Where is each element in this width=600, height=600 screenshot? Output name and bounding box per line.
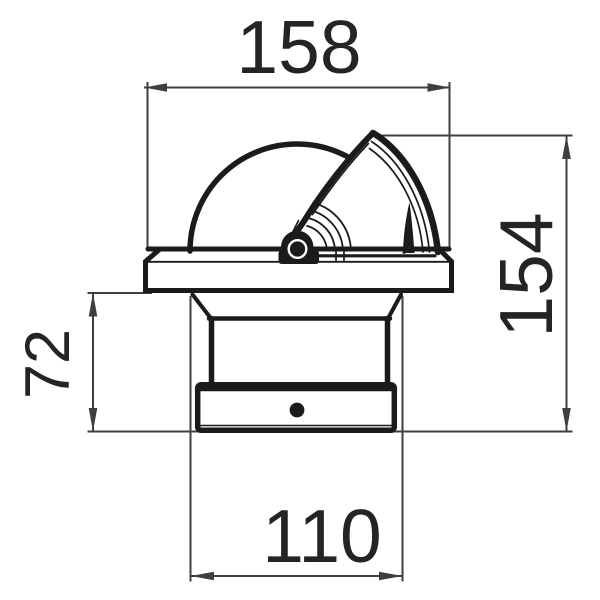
housing-knob-dot xyxy=(290,403,305,418)
arrowhead-top xyxy=(562,136,571,160)
technical-drawing: 158 154 72 110 xyxy=(0,0,600,600)
dimension-label-top-width: 158 xyxy=(236,5,361,89)
stem-slant-left xyxy=(193,295,212,319)
arrowhead-bottom xyxy=(562,408,571,432)
arrowhead-right xyxy=(428,83,451,92)
arrowhead-right xyxy=(379,572,403,581)
dimension-bottom-width: 110 xyxy=(191,296,403,582)
lower-housing xyxy=(198,385,395,431)
drawing-canvas: 158 154 72 110 xyxy=(0,0,600,600)
arrowhead-bottom xyxy=(89,408,98,432)
stem-slant-right xyxy=(388,295,401,319)
arrowhead-left xyxy=(191,572,215,581)
dimension-label-left-height: 72 xyxy=(13,329,83,399)
dimension-left-height: 72 xyxy=(13,293,152,432)
dimension-label-right-height: 154 xyxy=(484,212,568,337)
mounting-stem xyxy=(193,295,402,385)
arrowhead-top xyxy=(89,293,98,317)
dimension-label-bottom-width: 110 xyxy=(262,494,382,578)
